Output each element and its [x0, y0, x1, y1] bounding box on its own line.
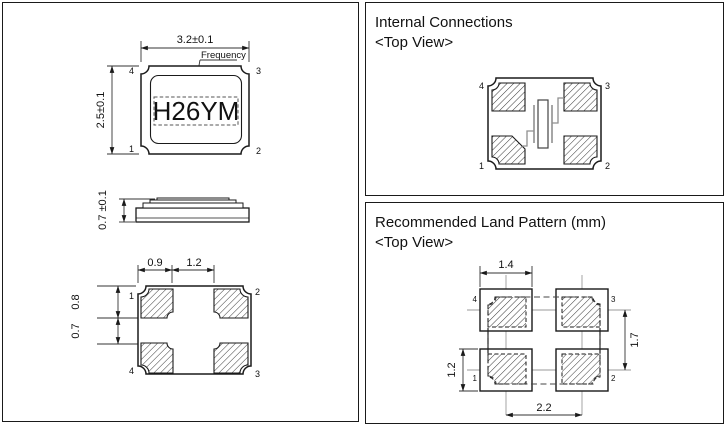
- component-pad-phantom: [562, 297, 600, 327]
- dim-label: 1.2: [186, 257, 201, 269]
- pin-number: 2: [605, 161, 610, 171]
- dim-height-label: 2.5±0.1: [95, 92, 107, 129]
- pin-number: 3: [611, 295, 616, 304]
- side-view-base: [136, 208, 249, 222]
- pin-number: 4: [473, 295, 478, 304]
- electrode-pad: [564, 83, 597, 111]
- outline-drawing: 3.2±0.1 Frequency 2.5±0.1 H26YM 4 3 1 2: [3, 3, 357, 420]
- panel-internal-connections: Internal Connections <Top View> 4 3 1 2: [365, 2, 724, 196]
- package-bottom-view: 0.9 1.2 0.8 0.7 1 2: [70, 257, 260, 379]
- pin-number: 2: [611, 374, 616, 383]
- dim-label: 1.2: [446, 362, 458, 377]
- pin-number: 1: [129, 291, 134, 301]
- package-top-view: 3.2±0.1 Frequency 2.5±0.1 H26YM 4 3 1 2: [95, 34, 261, 156]
- side-view-lid-top: [157, 198, 229, 200]
- panel-title: Internal Connections: [375, 14, 513, 31]
- land-pattern-view: 1.4 2.2 1.7 1.2 4 3 1 2: [446, 259, 641, 415]
- component-pad-phantom: [488, 297, 526, 327]
- pin-number: 4: [129, 366, 134, 376]
- panel-subtitle: <Top View>: [375, 34, 453, 51]
- panel-subtitle: <Top View>: [375, 234, 453, 251]
- internal-connections-view: 4 3 1 2: [479, 78, 610, 171]
- dim-width-label: 3.2±0.1: [177, 34, 214, 46]
- component-pad-phantom: [488, 354, 526, 384]
- dim-thickness-label: 0.7 ±0.1: [97, 190, 109, 230]
- pin-number: 3: [605, 81, 610, 91]
- dim-label: 2.2: [536, 402, 551, 414]
- panel-package-outline: 3.2±0.1 Frequency 2.5±0.1 H26YM 4 3 1 2: [2, 2, 359, 422]
- crystal-element: [538, 100, 548, 148]
- pin-number: 3: [256, 66, 261, 76]
- component-pad-phantom: [562, 354, 600, 384]
- datasheet-drawing: 3.2±0.1 Frequency 2.5±0.1 H26YM 4 3 1 2: [0, 0, 726, 426]
- pin-number: 4: [479, 81, 484, 91]
- pin-number: 2: [256, 146, 261, 156]
- dim-label: 0.9: [147, 257, 162, 269]
- dim-label: 1.7: [629, 332, 641, 347]
- dim-label: 1.4: [498, 259, 513, 271]
- package-side-view: 0.7 ±0.1: [97, 190, 249, 230]
- part-marking: H26YM: [153, 96, 240, 126]
- electrode-pad: [492, 83, 525, 111]
- panel-title: Recommended Land Pattern (mm): [375, 214, 606, 231]
- pin-number: 3: [255, 369, 260, 379]
- land-pattern-drawing: Recommended Land Pattern (mm) <Top View>: [366, 203, 722, 422]
- electrode-pad: [564, 136, 597, 164]
- pin-number: 1: [473, 374, 478, 383]
- pin-number: 4: [129, 66, 134, 76]
- pin-number: 1: [479, 161, 484, 171]
- frequency-label: Frequency: [201, 50, 246, 61]
- side-view-lid-step1: [143, 203, 243, 208]
- pin-number: 2: [255, 287, 260, 297]
- dim-label: 0.7: [70, 323, 82, 338]
- internal-connections-drawing: Internal Connections <Top View> 4 3 1 2: [366, 3, 722, 194]
- pin-number: 1: [129, 144, 134, 154]
- panel-land-pattern: Recommended Land Pattern (mm) <Top View>: [365, 202, 724, 424]
- dim-label: 0.8: [70, 294, 82, 309]
